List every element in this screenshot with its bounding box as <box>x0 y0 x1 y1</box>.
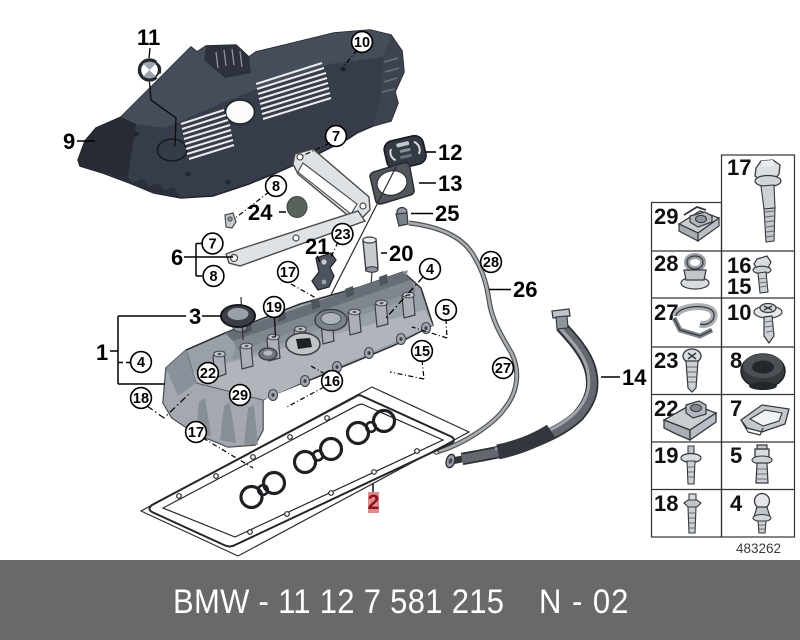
svg-text:8: 8 <box>209 269 217 285</box>
svg-text:4: 4 <box>730 491 743 516</box>
svg-text:14: 14 <box>622 365 647 390</box>
svg-text:18: 18 <box>654 491 678 516</box>
svg-text:27: 27 <box>495 361 511 377</box>
svg-text:15: 15 <box>414 344 430 360</box>
svg-text:N - 02: N - 02 <box>539 583 629 621</box>
svg-text:10: 10 <box>727 300 751 325</box>
svg-text:22: 22 <box>200 366 216 382</box>
svg-text:7: 7 <box>730 396 742 421</box>
svg-text:23: 23 <box>334 227 350 243</box>
svg-text:9: 9 <box>63 129 75 154</box>
svg-text:23: 23 <box>654 348 678 373</box>
svg-text:20: 20 <box>389 241 413 266</box>
svg-text:7: 7 <box>332 129 340 145</box>
svg-text:8: 8 <box>272 179 280 195</box>
svg-text:1: 1 <box>96 340 108 365</box>
svg-text:24: 24 <box>248 200 273 225</box>
svg-text:4: 4 <box>137 355 145 371</box>
svg-text:16: 16 <box>324 374 340 390</box>
svg-text:29: 29 <box>232 388 248 404</box>
svg-text:12: 12 <box>438 140 462 165</box>
svg-text:18: 18 <box>133 391 149 407</box>
svg-text:26: 26 <box>513 277 537 302</box>
svg-text:29: 29 <box>654 204 678 229</box>
svg-text:3: 3 <box>189 304 201 329</box>
svg-text:25: 25 <box>435 201 459 226</box>
svg-text:17: 17 <box>280 265 296 281</box>
svg-text:21: 21 <box>305 234 329 259</box>
svg-text:483262: 483262 <box>736 541 781 556</box>
svg-text:4: 4 <box>426 262 434 278</box>
svg-text:15: 15 <box>727 274 751 299</box>
svg-text:19: 19 <box>654 443 678 468</box>
svg-text:2: 2 <box>368 491 380 514</box>
svg-text:11: 11 <box>137 25 160 50</box>
svg-text:28: 28 <box>654 251 678 276</box>
svg-text:7: 7 <box>208 237 216 253</box>
svg-text:5: 5 <box>730 443 742 468</box>
svg-text:28: 28 <box>483 255 499 271</box>
svg-text:17: 17 <box>727 155 751 180</box>
svg-text:6: 6 <box>171 245 183 270</box>
svg-text:13: 13 <box>438 171 462 196</box>
svg-text:10: 10 <box>354 35 370 51</box>
svg-text:BMW - 11 12 7 581 215: BMW - 11 12 7 581 215 <box>173 583 504 621</box>
svg-text:5: 5 <box>442 303 450 319</box>
svg-text:19: 19 <box>266 300 282 316</box>
svg-text:17: 17 <box>188 425 204 441</box>
